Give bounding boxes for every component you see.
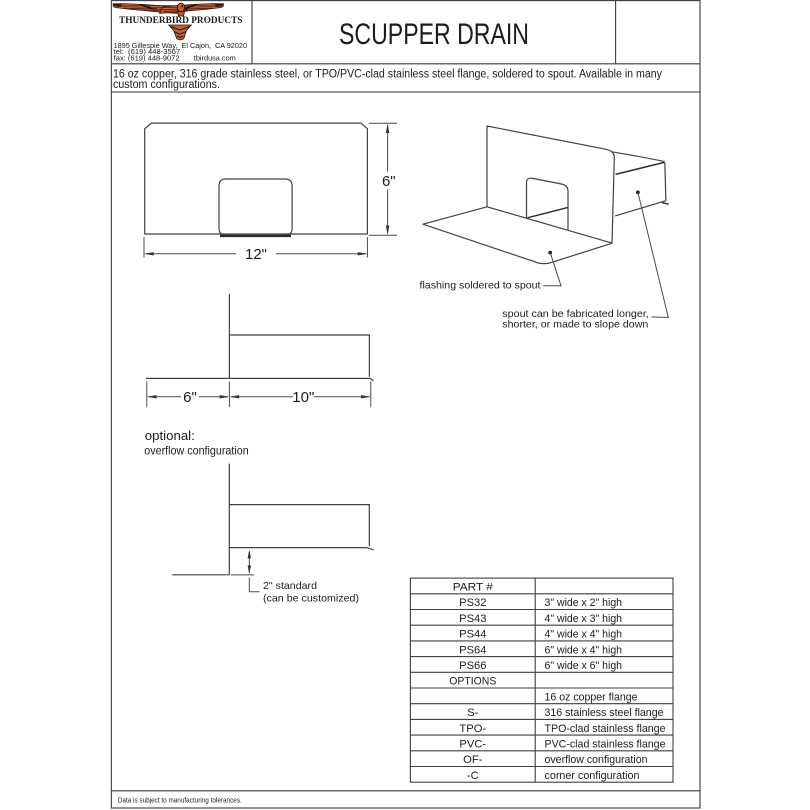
- svg-text:TPO-: TPO-: [459, 723, 486, 735]
- svg-text:4" wide x 3" high: 4" wide x 3" high: [545, 613, 623, 625]
- svg-text:PS43: PS43: [459, 613, 486, 625]
- svg-text:tbirdusa.com: tbirdusa.com: [194, 54, 236, 63]
- svg-text:optional:: optional:: [145, 429, 195, 443]
- svg-text:corner configuration: corner configuration: [545, 770, 640, 782]
- svg-text:PVC-clad stainless flange: PVC-clad stainless flange: [545, 739, 666, 751]
- svg-text:custom configurations.: custom configurations.: [113, 79, 220, 91]
- svg-text:3" wide x 2" high: 3" wide x 2" high: [545, 597, 623, 609]
- svg-text:12": 12": [245, 246, 267, 263]
- svg-text:PS64: PS64: [459, 644, 486, 656]
- svg-text:10": 10": [292, 389, 314, 406]
- svg-text:6" wide x 6" high: 6" wide x 6" high: [545, 660, 623, 672]
- svg-text:PS32: PS32: [459, 597, 486, 609]
- svg-text:6": 6": [183, 389, 197, 406]
- svg-text:overflow configuration: overflow configuration: [545, 754, 648, 766]
- svg-text:fax: (619) 448-9072: fax: (619) 448-9072: [114, 54, 180, 63]
- svg-text:OF-: OF-: [463, 754, 483, 766]
- svg-text:OPTIONS: OPTIONS: [449, 676, 496, 688]
- svg-text:S-: S-: [467, 707, 478, 719]
- svg-text:PS44: PS44: [459, 629, 486, 641]
- svg-text:6" wide x 4" high: 6" wide x 4" high: [545, 644, 623, 656]
- svg-text:Data is subject to manufacturi: Data is subject to manufacturing toleran…: [118, 795, 242, 804]
- svg-text:TPO-clad stainless flange: TPO-clad stainless flange: [545, 723, 666, 735]
- svg-text:316 stainless steel flange: 316 stainless steel flange: [545, 707, 664, 719]
- svg-text:16 oz copper flange: 16 oz copper flange: [545, 691, 638, 703]
- svg-text:PVC-: PVC-: [459, 739, 486, 751]
- svg-text:overflow configuration: overflow configuration: [144, 443, 248, 457]
- svg-text:THUNDERBIRD PRODUCTS: THUNDERBIRD PRODUCTS: [119, 15, 243, 25]
- svg-text:4" wide x 4" high: 4" wide x 4" high: [545, 629, 623, 641]
- svg-text:flashing soldered to spout: flashing soldered to spout: [420, 280, 541, 292]
- svg-text:(can be customized): (can be customized): [263, 592, 359, 604]
- svg-text:-C: -C: [467, 770, 479, 782]
- svg-text:2" standard: 2" standard: [263, 580, 317, 592]
- svg-text:SCUPPER DRAIN: SCUPPER DRAIN: [339, 18, 529, 51]
- svg-text:6": 6": [382, 173, 396, 190]
- svg-text:PART #: PART #: [453, 582, 494, 594]
- svg-text:PS66: PS66: [459, 660, 486, 672]
- svg-text:shorter, or made to slope down: shorter, or made to slope down: [502, 319, 648, 331]
